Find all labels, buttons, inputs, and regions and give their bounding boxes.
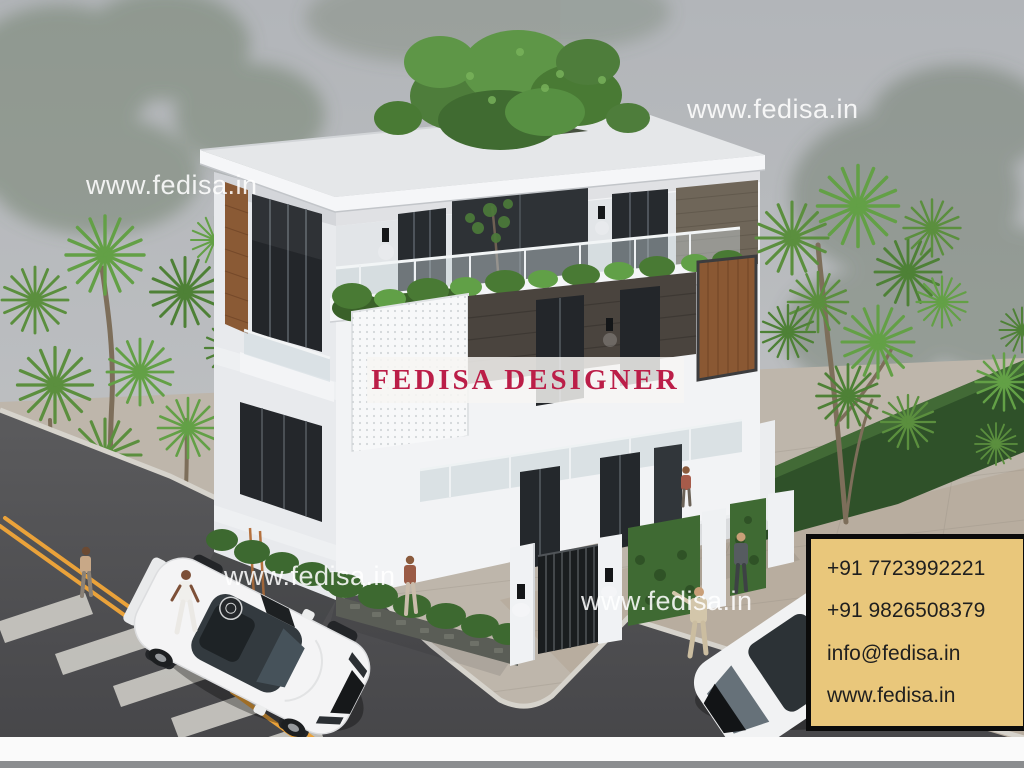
wall-pillar	[768, 490, 794, 568]
wall-lamp	[382, 228, 389, 242]
watermark-text: www.fedisa.in	[687, 94, 859, 125]
bottom-white-strip	[0, 737, 1024, 762]
gate-lamp	[517, 584, 525, 599]
designer-banner: FEDISA DESIGNER	[367, 357, 684, 403]
contact-phone-secondary: +91 9826508379	[827, 599, 1023, 623]
contact-phone-primary: +91 7723992221	[827, 557, 1023, 581]
wall-lamp	[606, 318, 613, 331]
watermark-text: www.fedisa.in	[224, 561, 396, 592]
contact-website: www.fedisa.in	[827, 684, 1023, 708]
gate-lamp	[605, 568, 613, 582]
contact-email: info@fedisa.in	[827, 642, 1023, 666]
watermark-text: www.fedisa.in	[581, 586, 753, 617]
bottom-gray-strip	[0, 761, 1024, 768]
wall-lamp	[598, 206, 605, 219]
wood-panel-mid	[698, 256, 756, 380]
watermark-text: www.fedisa.in	[86, 170, 258, 201]
architectural-render: www.fedisa.in www.fedisa.in www.fedisa.i…	[0, 0, 1024, 768]
contact-card: +91 7723992221 +91 9826508379 info@fedis…	[806, 534, 1024, 731]
wood-cladding-left	[225, 182, 248, 334]
